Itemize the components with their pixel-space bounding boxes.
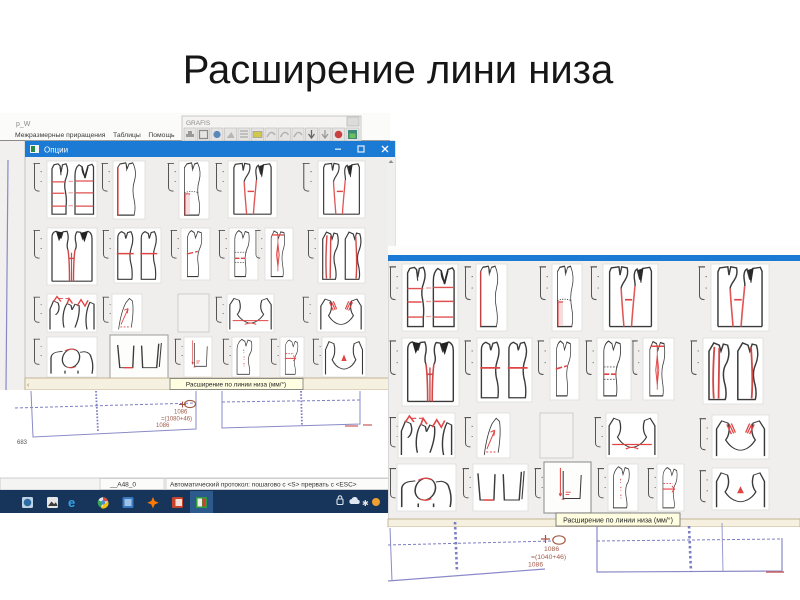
svg-text:1086: 1086 [528,562,543,569]
svg-text:683: 683 [17,440,28,446]
svg-text:__A48_0: __A48_0 [109,482,136,489]
svg-text:Опции: Опции [44,146,68,155]
svg-text:p_W: p_W [16,121,31,128]
svg-text:Расширение по линии низа (мм/°: Расширение по линии низа (мм/°) [186,381,286,389]
svg-text:1086: 1086 [156,423,170,429]
svg-text:Автоматический протокол: пошаг: Автоматический протокол: пошагово с <S> … [170,481,357,489]
svg-text:e: e [68,495,75,510]
svg-text:Межразмерные приращения Таб: Межразмерные приращения Таблицы Помощь [15,131,175,139]
svg-text:Расширение по линии низа (мм/°: Расширение по линии низа (мм/°) [563,517,673,525]
svg-text:1086: 1086 [174,410,188,416]
svg-text:=(1040+46): =(1040+46) [531,554,566,561]
svg-text:✱: ✱ [362,499,369,508]
svg-text:1086: 1086 [544,546,559,553]
svg-text:GRAFIS: GRAFIS [186,120,211,127]
svg-text:=(1080+46): =(1080+46) [161,417,192,423]
svg-text:Расширение лини низа: Расширение лини низа [183,48,614,92]
